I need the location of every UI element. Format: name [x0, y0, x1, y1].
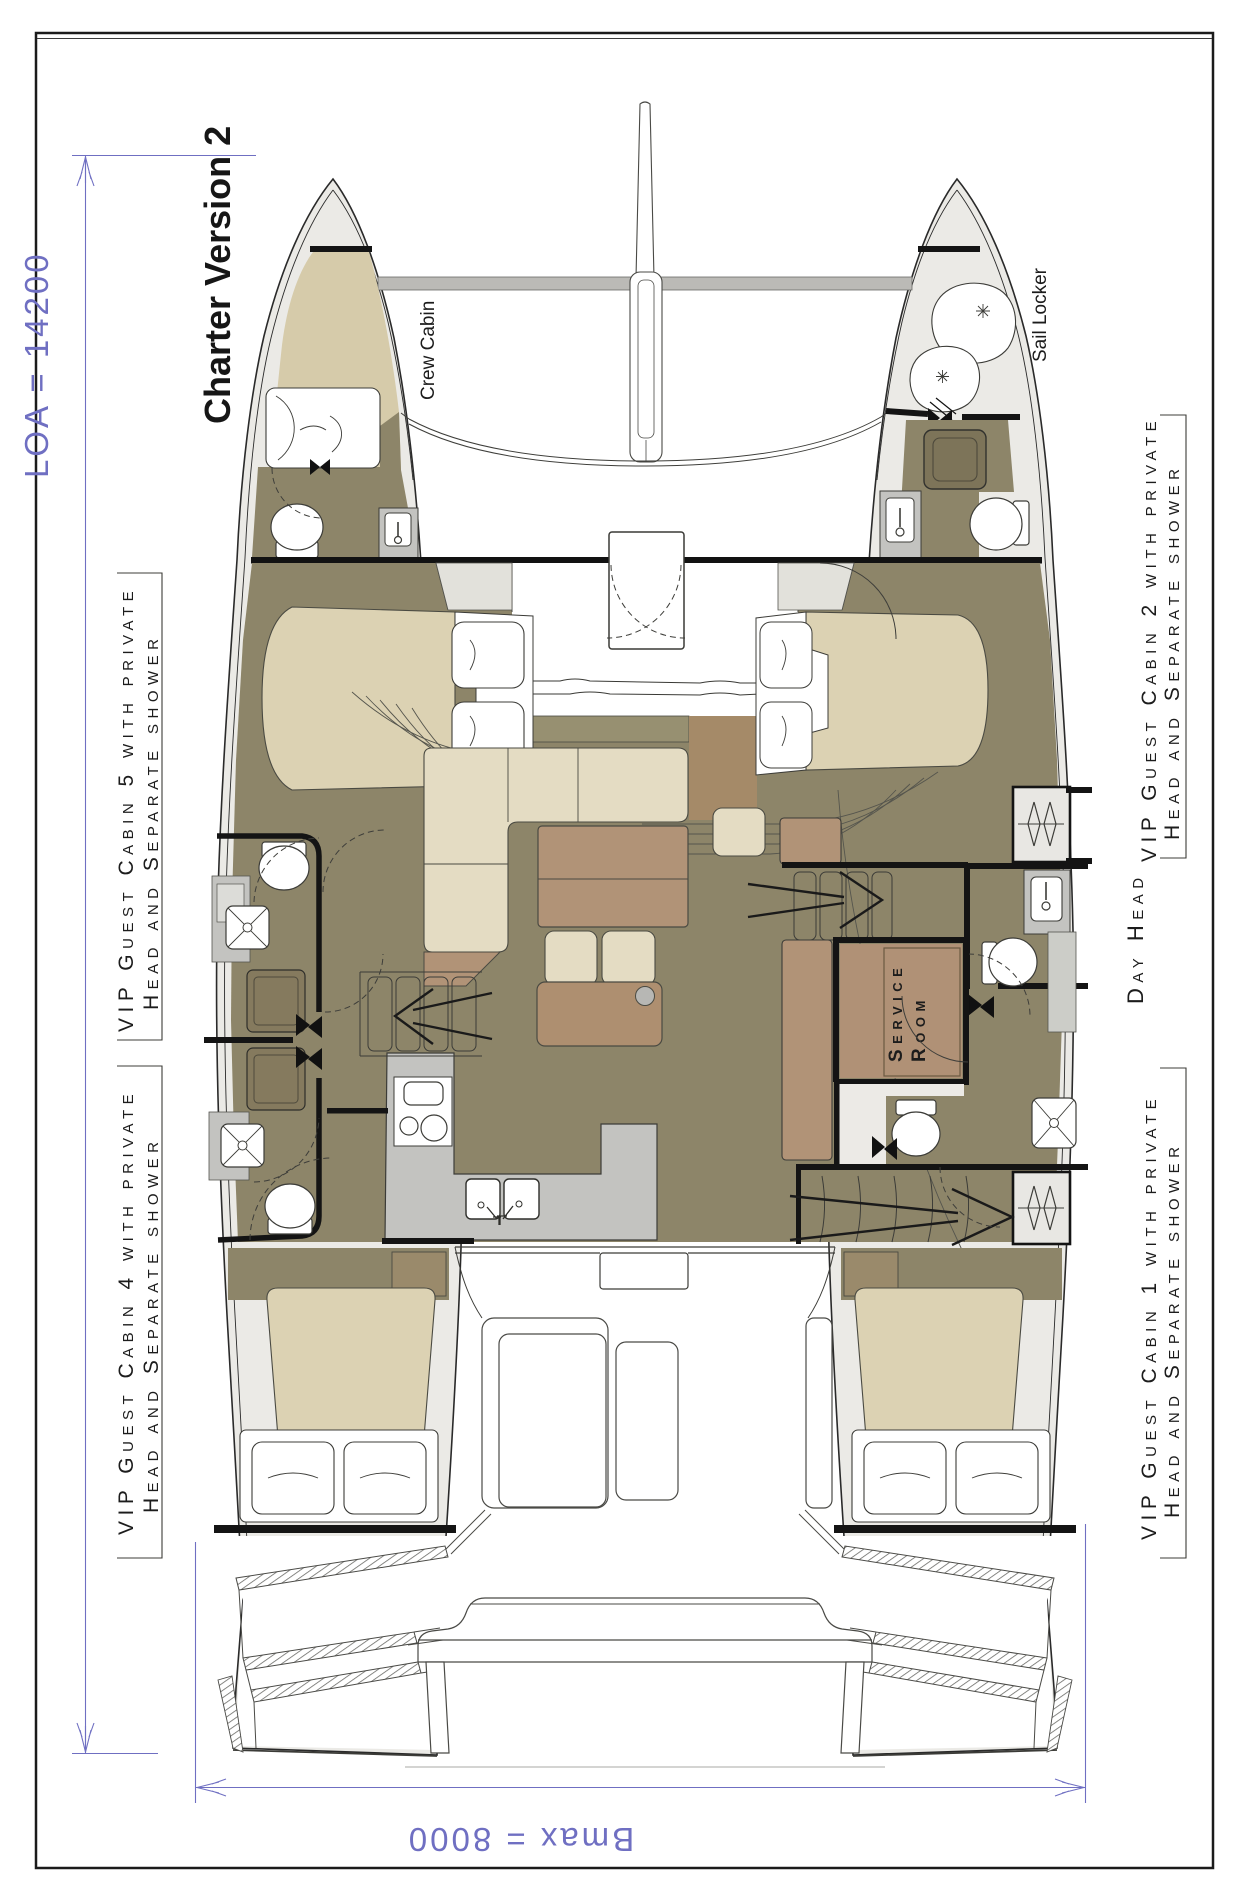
svg-text:LOA = 14200: LOA = 14200	[18, 251, 55, 478]
svg-text:Bmax = 8000: Bmax = 8000	[406, 1821, 634, 1858]
svg-text:Head and Separate shower: Head and Separate shower	[1161, 464, 1184, 840]
svg-text:Sail Locker: Sail Locker	[1030, 267, 1051, 362]
svg-text:Day Head: Day Head	[1123, 872, 1148, 1004]
svg-text:Crew Cabin: Crew Cabin	[418, 301, 439, 400]
svg-text:VIP Guest Cabin 5 with private: VIP Guest Cabin 5 with private	[115, 586, 138, 1032]
svg-text:Head and Separate shower: Head and Separate shower	[1161, 1142, 1184, 1518]
svg-text:Room: Room	[909, 995, 930, 1062]
svg-text:Head and Separate shower: Head and Separate shower	[140, 634, 163, 1010]
svg-text:VIP Guest Cabin 4 with private: VIP Guest Cabin 4 with private	[115, 1089, 138, 1535]
svg-text:Charter Version 2: Charter Version 2	[197, 126, 238, 424]
svg-text:VIP Guest Cabin 2 with private: VIP Guest Cabin 2 with private	[1138, 416, 1161, 862]
svg-text:Head and Separate shower: Head and Separate shower	[140, 1137, 163, 1513]
svg-text:VIP Guest Cabin 1 with private: VIP Guest Cabin 1 with private	[1138, 1094, 1161, 1540]
